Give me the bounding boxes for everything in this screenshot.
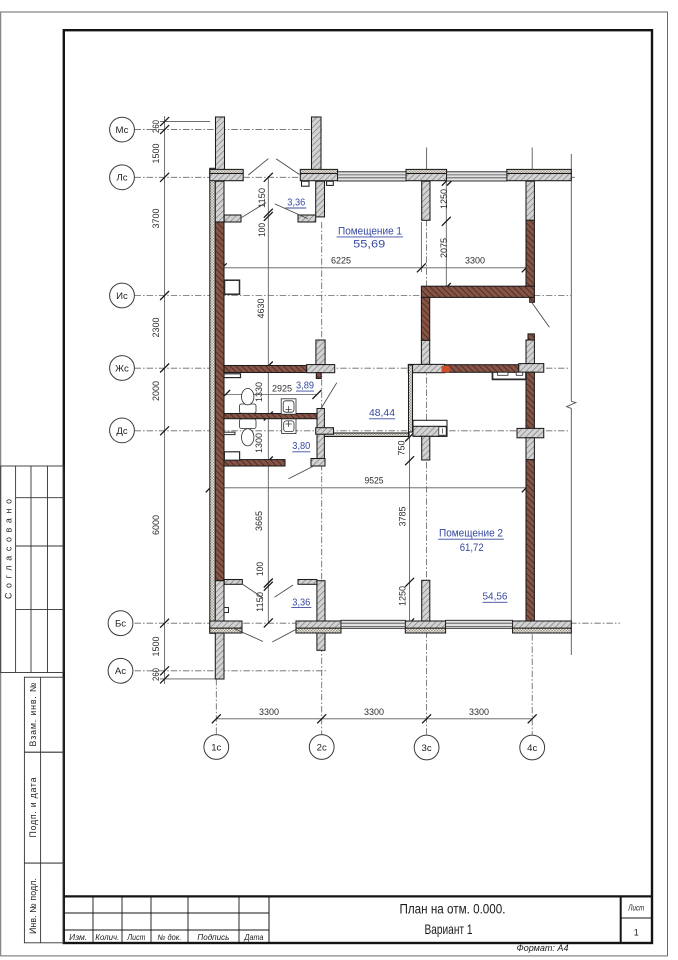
svg-text:1300: 1300 (254, 433, 264, 453)
svg-text:1250: 1250 (397, 586, 407, 606)
svg-text:1150: 1150 (255, 592, 265, 612)
svg-text:1150: 1150 (257, 188, 267, 208)
svg-text:54,56: 54,56 (483, 592, 508, 603)
svg-text:Изм.: Изм. (69, 933, 87, 942)
svg-text:Лс: Лс (116, 173, 127, 184)
svg-text:3,80: 3,80 (292, 441, 310, 452)
svg-text:Помещение 1: Помещение 1 (338, 226, 402, 238)
svg-text:750: 750 (396, 441, 406, 456)
svg-text:2925: 2925 (272, 384, 292, 394)
svg-text:1500: 1500 (151, 637, 161, 657)
svg-text:48,44: 48,44 (369, 408, 395, 419)
svg-text:6000: 6000 (151, 515, 161, 535)
svg-text:1330: 1330 (254, 382, 264, 402)
svg-text:1: 1 (634, 928, 639, 938)
svg-text:Вариант 1: Вариант 1 (425, 921, 473, 937)
svg-text:6225: 6225 (331, 256, 351, 266)
svg-text:3700: 3700 (151, 209, 161, 229)
svg-text:Жс: Жс (115, 363, 129, 374)
svg-text:2000: 2000 (151, 381, 161, 401)
svg-text:3,89: 3,89 (296, 380, 314, 391)
svg-text:3,36: 3,36 (287, 198, 305, 209)
svg-text:Подпись: Подпись (197, 933, 229, 942)
svg-text:Взам. инв. №: Взам. инв. № (28, 683, 38, 747)
svg-text:3300: 3300 (259, 707, 279, 717)
svg-text:260: 260 (151, 120, 161, 133)
svg-text:3,36: 3,36 (292, 598, 310, 609)
svg-text:3665: 3665 (254, 511, 264, 531)
svg-text:Колич.: Колич. (95, 933, 119, 942)
svg-text:Помещение 2: Помещение 2 (439, 528, 503, 540)
svg-text:4с: 4с (527, 743, 537, 754)
svg-text:Бс: Бс (115, 619, 126, 630)
svg-text:Инв. № подл.: Инв. № подл. (28, 878, 38, 934)
svg-text:Ис: Ис (116, 291, 128, 302)
svg-text:3300: 3300 (465, 256, 485, 266)
svg-text:3785: 3785 (397, 507, 407, 527)
svg-text:1500: 1500 (151, 144, 161, 164)
svg-text:55,69: 55,69 (353, 238, 385, 250)
svg-text:Мс: Мс (116, 125, 129, 136)
svg-text:9525: 9525 (365, 476, 384, 486)
svg-text:2075: 2075 (439, 238, 449, 258)
svg-text:План на отм. 0.000.: План на отм. 0.000. (400, 901, 506, 917)
svg-text:3300: 3300 (469, 707, 489, 717)
svg-text:Подп. и дата: Подп. и дата (28, 777, 38, 837)
svg-text:3300: 3300 (364, 707, 384, 717)
svg-text:260: 260 (151, 668, 161, 681)
svg-text:Дс: Дс (116, 426, 127, 437)
svg-text:100: 100 (255, 562, 265, 576)
svg-text:Формат: А4: Формат: А4 (517, 943, 569, 954)
svg-text:1250: 1250 (439, 189, 449, 209)
svg-text:1с: 1с (211, 742, 221, 753)
svg-text:2с: 2с (317, 742, 327, 753)
svg-text:Лист: Лист (127, 933, 146, 942)
svg-text:4630: 4630 (256, 299, 266, 319)
svg-text:Дата: Дата (243, 933, 264, 942)
svg-text:Ас: Ас (115, 666, 126, 677)
svg-text:Согласовано: Согласовано (4, 499, 14, 599)
svg-text:№ док.: № док. (157, 933, 181, 942)
svg-text:3с: 3с (422, 743, 432, 754)
svg-text:61,72: 61,72 (460, 542, 484, 554)
svg-text:2300: 2300 (151, 318, 161, 338)
svg-text:100: 100 (257, 223, 267, 237)
svg-text:Лист: Лист (628, 903, 645, 913)
